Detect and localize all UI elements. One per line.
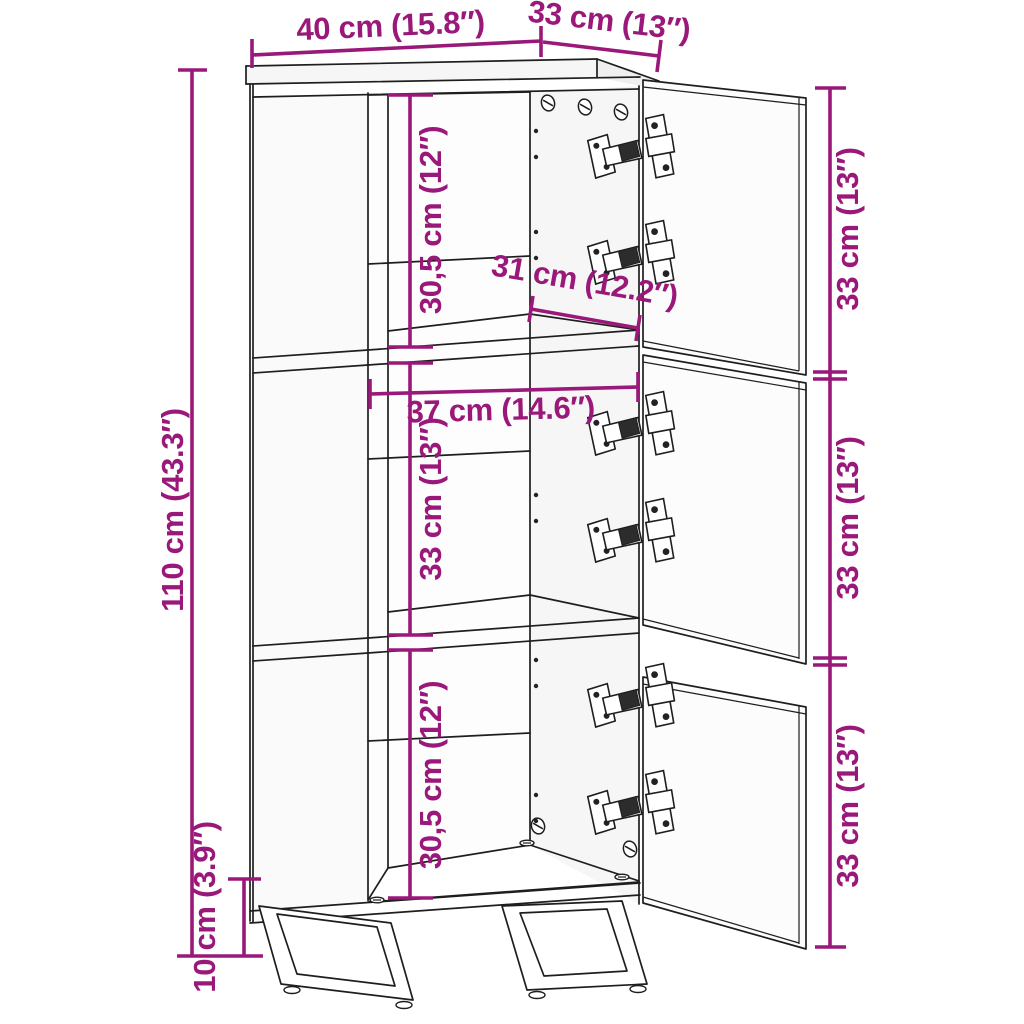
- leg-foot-pad: [529, 992, 545, 999]
- diagram-canvas: 40 cm (15.8″) 33 cm (13″) 110 cm (43.3″)…: [0, 0, 1024, 1024]
- cabinet-line-art: [246, 59, 806, 1009]
- leg-front-left: [259, 906, 413, 1009]
- floor-screw-icon: [370, 897, 384, 903]
- leg-foot-pad: [284, 987, 300, 994]
- face-fills: [246, 59, 659, 922]
- leg-front-right: [502, 901, 647, 999]
- dim-door-heights: 33 cm (13″) 33 cm (13″) 33 cm (13″): [813, 88, 865, 947]
- leg-foot-pad: [630, 986, 646, 993]
- cabinet-dimension-diagram: 40 cm (15.8″) 33 cm (13″) 110 cm (43.3″)…: [0, 0, 1024, 1024]
- dim-label-leg-height: 10 cm (3.9″): [187, 821, 222, 993]
- dim-label-total-height: 110 cm (43.3″): [155, 408, 190, 612]
- leg-foot-pad: [396, 1002, 412, 1009]
- dim-label-lower-compartment: 30,5 cm (12″): [413, 681, 448, 869]
- right-wall-face: [530, 86, 639, 904]
- dim-label-top-width: 40 cm (15.8″): [296, 4, 486, 48]
- dim-label-door-bottom: 33 cm (13″): [830, 724, 865, 887]
- dim-label-middle-compartment: 33 cm (13″): [413, 417, 448, 580]
- legs: [259, 901, 647, 1009]
- dim-label-door-top: 33 cm (13″): [830, 147, 865, 310]
- dim-label-door-middle: 33 cm (13″): [830, 436, 865, 599]
- left-wall-face: [253, 93, 368, 922]
- dim-label-upper-compartment: 30,5 cm (12″): [413, 126, 448, 314]
- floor-screw-icon: [615, 874, 629, 880]
- dim-label-depth: 33 cm (13″): [526, 0, 692, 48]
- door-top: [643, 80, 806, 375]
- door-middle: [643, 355, 806, 664]
- back-panel-face: [368, 92, 530, 900]
- dim-top-width: 40 cm (15.8″): [252, 4, 541, 68]
- floor-screw-icon: [520, 840, 534, 846]
